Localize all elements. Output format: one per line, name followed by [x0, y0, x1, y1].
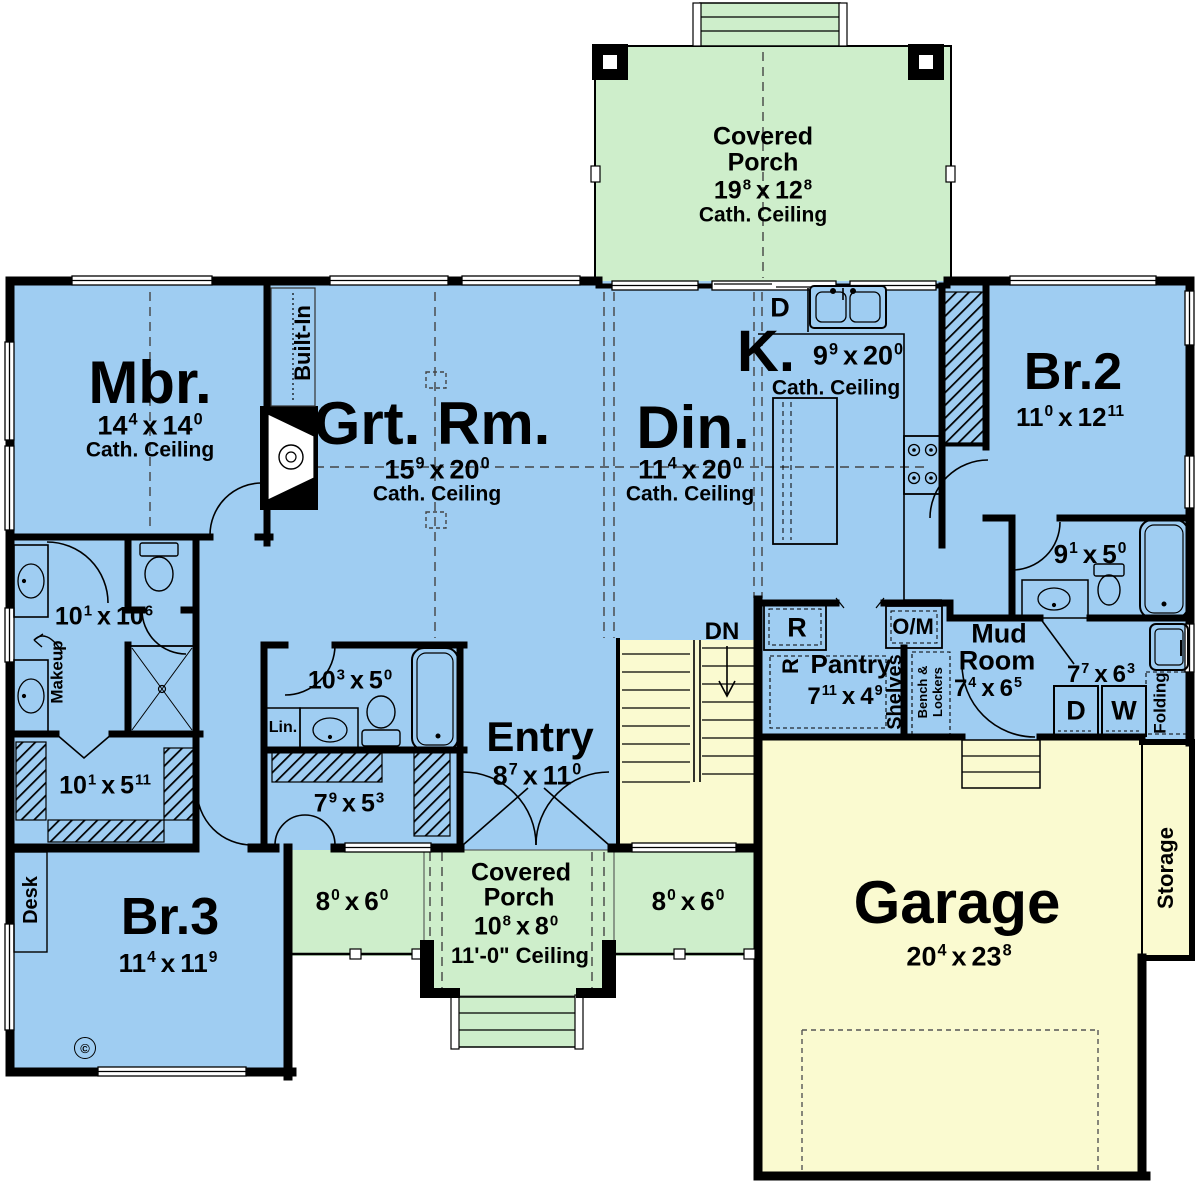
kitchen-sink-icon: [810, 286, 886, 328]
oven-microwave-label: O/M: [892, 616, 934, 638]
porch-bottom-name-line1: Covered: [471, 861, 571, 886]
bench-lockers-label: Bench & Lockers: [916, 666, 946, 719]
bedroom2-dim: 110x1211: [1016, 404, 1124, 430]
mud-room-dim: 74x65: [954, 677, 1022, 701]
porch-bottom-right-dim: 80x60: [652, 888, 725, 914]
mud-room-name-line1: Mud: [971, 621, 1026, 648]
porch-top-ceiling-note: Cath. Ceiling: [699, 205, 827, 226]
room-label-entry: Entry: [486, 716, 593, 758]
stairs-dn-label: DN: [705, 620, 740, 644]
great-room-ceiling-note: Cath. Ceiling: [373, 484, 501, 505]
porch-steps-top: [693, 3, 847, 46]
hall-bath-dim: 103x50: [308, 669, 392, 694]
fireplace-icon: [260, 406, 318, 510]
dryer-label: D: [1066, 698, 1086, 725]
room-label-pantry: Pantry: [811, 651, 892, 677]
dining-ceiling-note: Cath. Ceiling: [626, 484, 754, 505]
entry-dim: 87x110: [493, 763, 582, 790]
laundry-dim: 77x63: [1067, 663, 1135, 687]
room-label-bedroom2: Br.2: [1024, 346, 1122, 398]
porch-top-name-line1: Covered: [713, 125, 813, 150]
garage-entry-steps: [962, 740, 1040, 788]
room-label-kitchen: K.: [737, 323, 795, 381]
entry-closet-dim: 79x53: [314, 792, 384, 817]
folding-label: Folding: [1152, 672, 1169, 733]
garage-dim: 204x238: [906, 944, 1011, 971]
porch-top-name-line2: Porch: [728, 151, 799, 176]
makeup-label: Makeup: [49, 640, 66, 703]
mud-room-name-line2: Room: [959, 648, 1036, 675]
master-bath-dim: 101x106: [55, 605, 153, 630]
porch-top-dim: 198x128: [714, 179, 812, 204]
room-label-master-bedroom: Mbr.: [88, 353, 211, 413]
porch-bottom-ceiling-note: 11'-0" Ceiling: [451, 945, 589, 967]
bedroom3-dim: 114x119: [119, 950, 218, 976]
bath2-dim: 91x50: [1054, 541, 1127, 567]
porch-steps-bottom: [451, 995, 583, 1049]
copyright-mark: ©: [74, 1037, 96, 1059]
refrigerator2-label: R: [780, 658, 802, 674]
dining-dim: 114x200: [638, 457, 742, 484]
master-bedroom-dim: 144x140: [97, 413, 202, 440]
room-label-bedroom3: Br.3: [121, 891, 219, 943]
porch-bottom-dim: 108x80: [474, 915, 558, 940]
desk-label: Desk: [21, 876, 41, 924]
refrigerator-label: R: [787, 615, 807, 642]
built-in-label: Built-In: [292, 305, 314, 381]
floor-plan: Covered Porch 198x128 Cath. Ceiling Mbr.…: [0, 0, 1200, 1184]
floor-plan-drawing: [0, 0, 1200, 1184]
shelves-label: Shelves: [885, 654, 905, 730]
dishwasher-label: D: [770, 295, 790, 322]
storage-label: Storage: [1155, 827, 1177, 909]
washer-label: W: [1111, 698, 1136, 725]
master-bedroom-ceiling-note: Cath. Ceiling: [86, 440, 214, 461]
kitchen-dim: 99x200: [813, 343, 903, 370]
room-label-great-room: Grt. Rm.: [314, 394, 551, 454]
porch-bottom-left-dim: 80x60: [316, 888, 389, 914]
linen-label: Lin.: [269, 720, 297, 736]
pantry-dim: 711x49: [807, 685, 882, 709]
room-label-garage: Garage: [854, 873, 1061, 933]
great-room-dim: 159x200: [384, 457, 489, 484]
master-closet-dim: 101x511: [59, 774, 151, 799]
room-label-dining: Din.: [636, 398, 749, 458]
porch-bottom-name-line2: Porch: [484, 886, 555, 911]
kitchen-ceiling-note: Cath. Ceiling: [772, 378, 900, 399]
